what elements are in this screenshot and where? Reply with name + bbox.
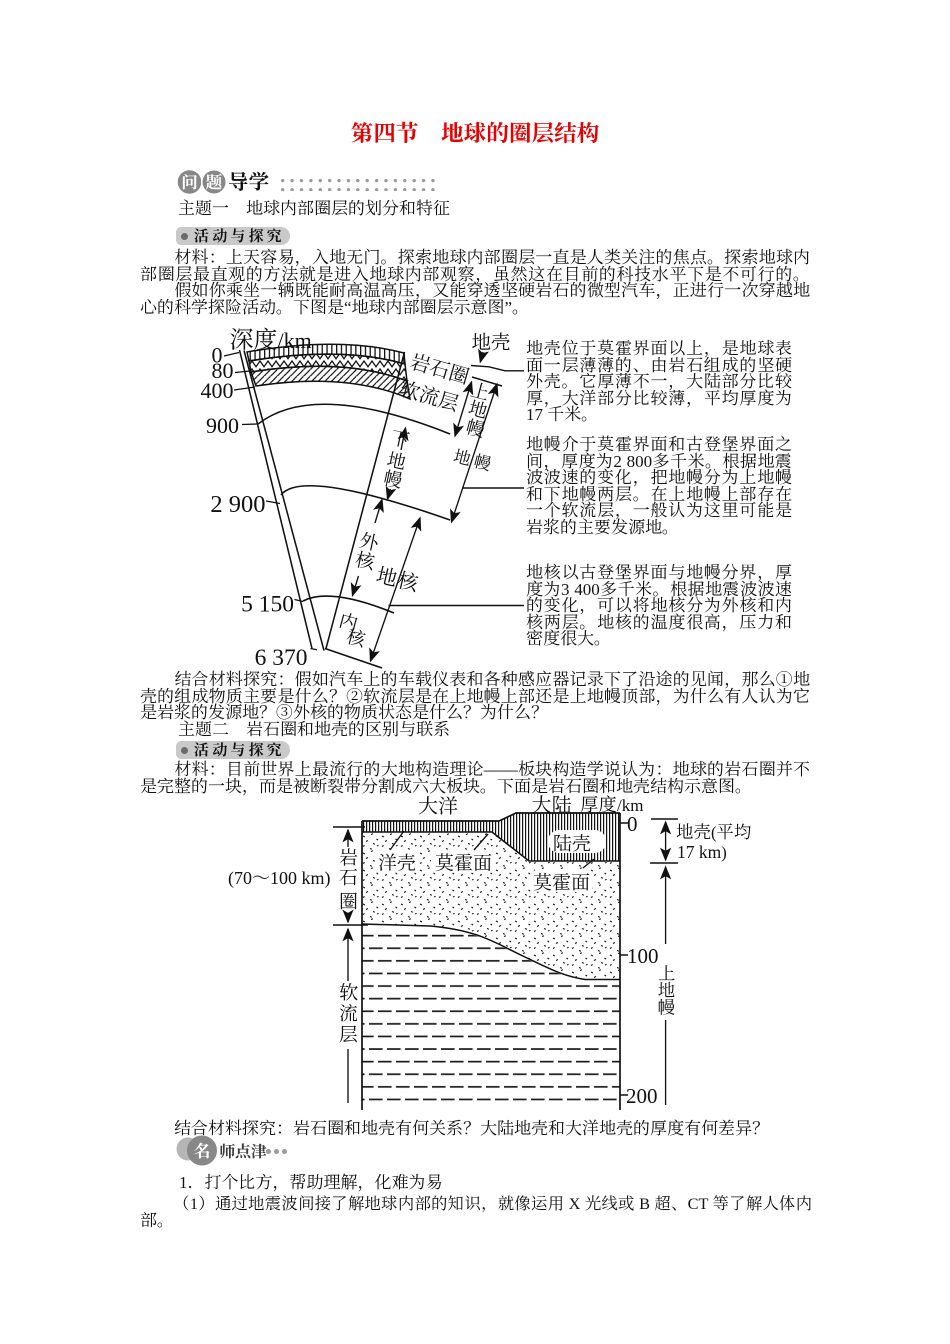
svg-text:岩: 岩 — [339, 848, 358, 869]
svg-text:地壳(平均: 地壳(平均 — [676, 822, 752, 842]
svg-text:问: 问 — [181, 173, 198, 192]
svg-text:5 150: 5 150 — [241, 592, 294, 618]
svg-text:陆壳: 陆壳 — [553, 833, 591, 855]
svg-text:层: 层 — [339, 1025, 358, 1046]
svg-text:题: 题 — [206, 173, 223, 192]
svg-text:400: 400 — [201, 378, 234, 403]
svg-text:导学: 导学 — [228, 171, 269, 194]
svg-text:莫霍面: 莫霍面 — [533, 873, 590, 894]
svg-text:17 km): 17 km) — [677, 842, 727, 862]
svg-text:软: 软 — [339, 982, 358, 1004]
svg-text:幔: 幔 — [382, 468, 404, 492]
svg-text:流: 流 — [339, 1003, 358, 1025]
svg-text:师点津: 师点津 — [220, 1143, 269, 1161]
svg-text:地核: 地核 — [374, 564, 421, 596]
svg-text:莫霍面: 莫霍面 — [435, 854, 492, 875]
svg-text:核: 核 — [344, 626, 368, 651]
svg-text:核: 核 — [353, 549, 376, 574]
svg-text:大洋: 大洋 — [418, 796, 458, 818]
svg-text:地壳: 地壳 — [471, 332, 510, 354]
svg-text:900: 900 — [206, 413, 239, 438]
svg-text:6 370: 6 370 — [255, 645, 308, 671]
svg-text:0: 0 — [627, 812, 638, 836]
svg-text:洋壳: 洋壳 — [378, 853, 416, 875]
svg-text:200: 200 — [626, 1084, 658, 1108]
svg-text:2 900: 2 900 — [210, 491, 265, 518]
svg-text:(70～100 km): (70～100 km) — [228, 864, 331, 890]
svg-text:幔: 幔 — [658, 998, 676, 1018]
svg-text:100: 100 — [627, 944, 659, 968]
svg-text:圈: 圈 — [339, 892, 358, 913]
svg-text:石: 石 — [339, 868, 358, 889]
svg-text:下: 下 — [389, 428, 411, 452]
svg-text:地幔: 地幔 — [452, 447, 497, 476]
svg-text:名: 名 — [194, 1142, 211, 1161]
